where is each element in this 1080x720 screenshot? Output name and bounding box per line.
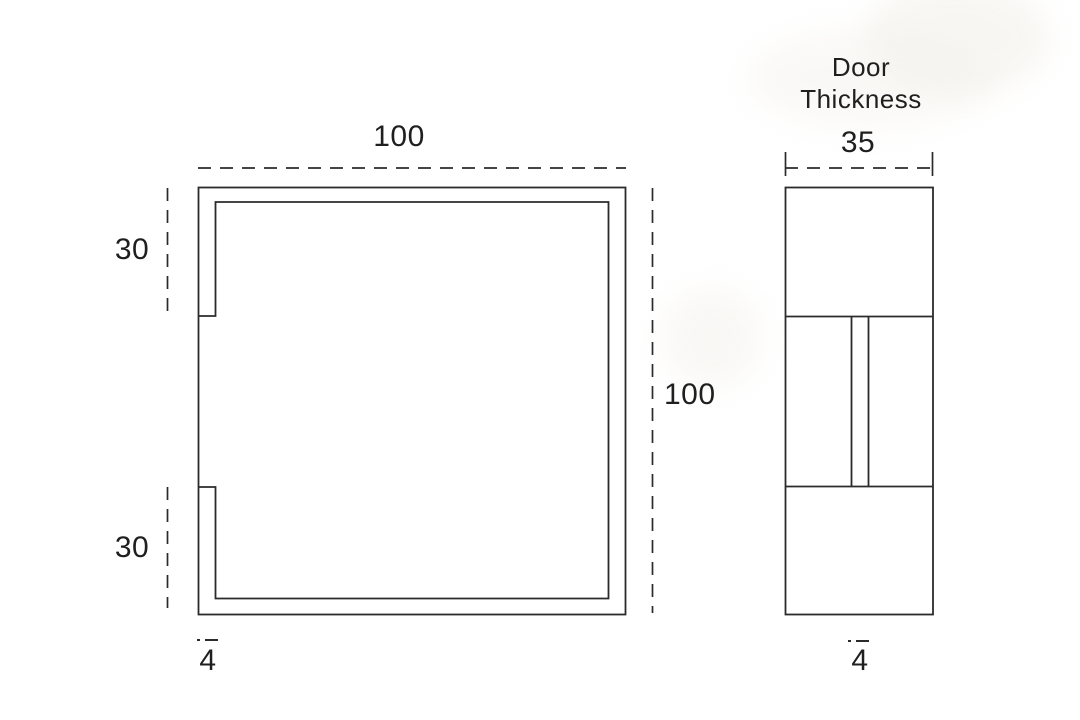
front-outer-outline (199, 188, 626, 615)
front-width-label: 100 (373, 120, 425, 153)
front-bottom-inset-label: 30 (115, 531, 149, 564)
front-height-label: 100 (664, 378, 716, 411)
side-outer-outline (786, 188, 934, 615)
front-view: 100 30 30 100 4 (115, 120, 716, 677)
front-inner-outline (199, 202, 609, 599)
side-thickness-label: 35 (841, 126, 875, 159)
front-edge-thickness-label: 4 (199, 644, 216, 677)
side-view: Door Thickness 35 4 (785, 52, 933, 677)
side-title-line2: Thickness (800, 84, 922, 114)
drawing-canvas: 100 30 30 100 4 Door Thickness 35 4 (0, 0, 1080, 720)
dimension-drawing: 100 30 30 100 4 Door Thickness 35 4 (0, 0, 1080, 720)
side-plate-thickness-label: 4 (851, 644, 868, 677)
front-top-inset-label: 30 (115, 233, 149, 266)
side-title-line1: Door (832, 52, 890, 82)
